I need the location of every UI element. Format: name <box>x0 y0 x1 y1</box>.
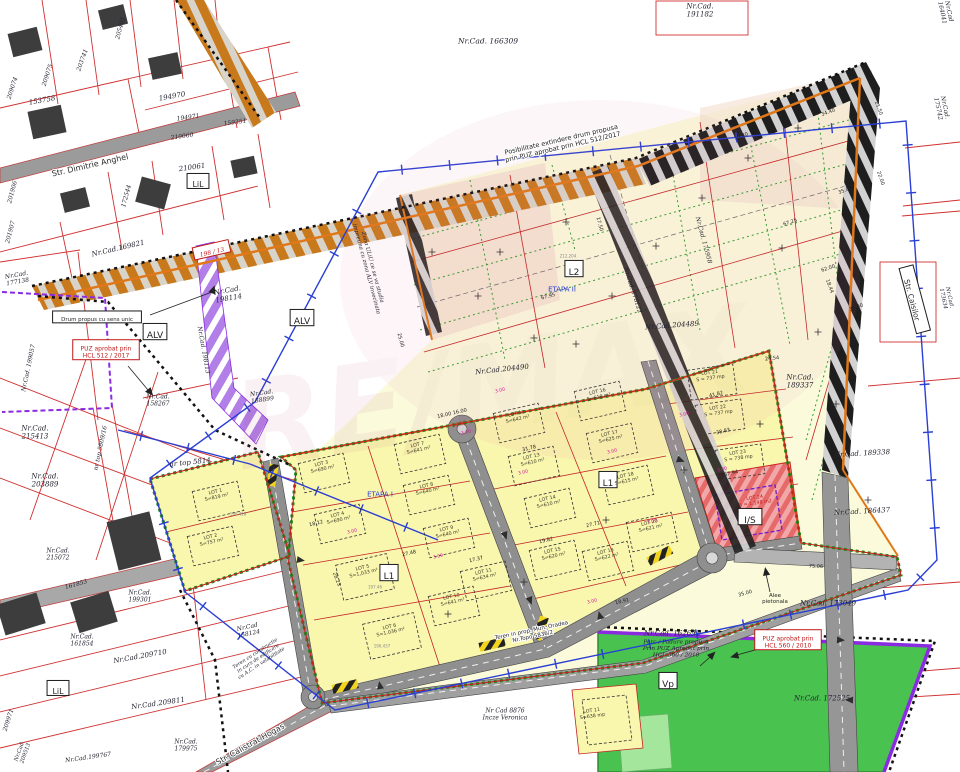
parcel-label: Nr.Cad.215413 <box>20 424 48 440</box>
parcel-label: Nr.Cad. 172525 <box>793 694 851 702</box>
parcel-label: Nr.Cad.209513 <box>13 740 32 766</box>
parcel-label: 203741 <box>75 48 90 73</box>
parcel-label: Nr.Cad. 166309 <box>457 37 518 46</box>
svg-text:Nr.Cad.209513: Nr.Cad.209513 <box>13 740 32 766</box>
svg-text:Vp: Vp <box>662 680 674 690</box>
svg-text:Nr.Cad.161854: Nr.Cad.161854 <box>69 634 93 648</box>
svg-text:Nr.Cad. 189338: Nr.Cad. 189338 <box>833 448 891 459</box>
parcel-label: 210061 <box>177 162 206 174</box>
survey-tick <box>784 128 785 138</box>
note-puz-560: PUZ aprobat prinHCL 560 / 2010 <box>755 630 822 650</box>
svg-text:Drum propus cu sens unic: Drum propus cu sens unic <box>61 317 133 323</box>
svg-text:Nr.Cad.209710: Nr.Cad.209710 <box>112 648 168 666</box>
svg-text:Nr.Cad.169821: Nr.Cad.169821 <box>90 238 145 258</box>
svg-text:ALV: ALV <box>147 331 164 341</box>
svg-text:Nr.Cad.209811: Nr.Cad.209811 <box>130 696 185 712</box>
parcel-label: 201906 <box>6 180 19 205</box>
parcel-label: Nr.Cad.175742 <box>932 94 951 121</box>
svg-text:196.437: 196.437 <box>374 643 391 648</box>
svg-text:75.06: 75.06 <box>809 564 824 570</box>
svg-text:153758: 153758 <box>28 94 56 107</box>
svg-text:Nr.Cad. 186437: Nr.Cad. 186437 <box>833 506 891 517</box>
parcel-label: Nr.Cad. 173049 <box>799 599 857 607</box>
parcel-label: Nr.Cad. 199057 <box>20 344 37 394</box>
survey-tick <box>926 480 936 481</box>
parcel-label: 201907 <box>4 220 17 245</box>
svg-text:Nr Cad 8876Incze Veronica: Nr Cad 8876Incze Veronica <box>482 708 528 722</box>
parcel-label: Nr.Cad.191182 <box>685 2 713 18</box>
survey-tick <box>275 662 281 670</box>
svg-text:Nr.Cad.173634: Nr.Cad.173634 <box>938 285 955 310</box>
svg-text:Nr.Cad.203889: Nr.Cad.203889 <box>30 472 58 488</box>
zone-is: I/S <box>738 508 762 526</box>
svg-text:209075: 209075 <box>40 63 54 88</box>
note-label: Parc / Padure propusaPrin PUZ Aprobat pr… <box>642 639 709 658</box>
parcel-label: Nr.Cad.215072 <box>45 548 69 562</box>
zone-alv-2: ALV <box>290 309 314 327</box>
parcel-label: Nr.Cad. 186437 <box>833 506 891 517</box>
zone-alv-1: ALV <box>143 323 167 341</box>
parcel-label: Nr.Cad. 189338 <box>833 448 891 459</box>
zone-l2: L2 <box>565 260 583 278</box>
svg-text:22.00: 22.00 <box>875 170 885 185</box>
svg-text:Parc / Padure propusaPrin PUZ: Parc / Padure propusaPrin PUZ Aprobat pr… <box>642 639 709 658</box>
survey-tick <box>330 251 339 256</box>
svg-text:201906: 201906 <box>6 180 19 205</box>
parcel-label: Nr.Cad.198114 <box>212 284 243 305</box>
svg-text:L1: L1 <box>603 479 614 489</box>
svg-text:Nr.Cad164041: Nr.Cad164041 <box>936 0 954 25</box>
svg-text:ALV: ALV <box>294 317 311 327</box>
parcel-label: Nr.Cad.209710 <box>112 648 168 666</box>
svg-text:203741: 203741 <box>75 48 90 73</box>
parcel-label: Nr.Cad.173634 <box>938 285 955 310</box>
survey-tick <box>930 528 940 529</box>
svg-text:Nr.Cad.177138: Nr.Cad.177138 <box>3 270 29 288</box>
svg-text:L2: L2 <box>569 268 580 278</box>
parcel-label: Nr Cad 8876Incze Veronica <box>482 708 528 722</box>
parcel-label: Nr.Cad.161854 <box>69 634 93 648</box>
cadastral-map-canvas: RE/MAX 209074209075203741205401153758194… <box>0 0 960 772</box>
parcel-label: 172544 <box>120 184 133 208</box>
survey-tick <box>200 602 206 610</box>
svg-text:Teren cu constructiein curs de: Teren cu constructiein curs de edificare… <box>231 636 286 680</box>
parcel-label: Nr.Cad.199767 <box>64 751 112 765</box>
svg-text:I/S: I/S <box>744 516 756 526</box>
survey-tick <box>205 432 211 440</box>
svg-text:Nr.Cad.179975: Nr.Cad.179975 <box>173 739 197 753</box>
pt-label: 197.46 <box>368 584 382 589</box>
svg-text:Nr.Cad. 172525: Nr.Cad. 172525 <box>793 694 851 702</box>
svg-text:Nr.Cad.191182: Nr.Cad.191182 <box>685 2 713 18</box>
parcel-label: Nr.Cad.169821 <box>90 238 145 258</box>
svg-text:Nr.Cad.175742: Nr.Cad.175742 <box>932 94 951 121</box>
svg-text:Nr.Cad.199767: Nr.Cad.199767 <box>64 751 112 765</box>
street-label-caisilor: Str. Caisilor <box>899 265 931 334</box>
zone-vp: Vp <box>659 672 677 690</box>
svg-text:Nr.Cad. 162691: Nr.Cad. 162691 <box>643 629 700 637</box>
pt-label: 196.437 <box>374 643 391 648</box>
parcel-label: 209971 <box>1 708 15 733</box>
parcel-label: Nr.Cad. 162691 <box>643 629 700 637</box>
svg-text:Nr.Cad. 173049: Nr.Cad. 173049 <box>799 599 857 607</box>
svg-text:197.46: 197.46 <box>368 584 382 589</box>
parcel-label: Nr.Cad.209811 <box>130 696 185 712</box>
svg-text:nr top 5809/16: nr top 5809/16 <box>92 425 108 471</box>
note-puz-512: PUZ aprobat prinHCL 512 / 2017 <box>73 340 140 360</box>
svg-text:Nr.Cad.215072: Nr.Cad.215072 <box>45 548 69 562</box>
dim-label: 22.00 <box>875 170 885 185</box>
survey-tick <box>906 192 916 193</box>
survey-tick <box>916 336 926 337</box>
svg-text:209074: 209074 <box>5 76 19 101</box>
svg-text:Nr.Cad.215413: Nr.Cad.215413 <box>20 424 48 440</box>
survey-tick <box>285 336 294 341</box>
pt-label: 196.418 <box>230 511 247 516</box>
survey-tick <box>923 432 933 433</box>
survey-tick <box>879 119 880 129</box>
svg-text:L1: L1 <box>384 572 395 582</box>
svg-text:ETAPA I: ETAPA I <box>367 490 393 498</box>
svg-text:Nr.Cad158124: Nr.Cad158124 <box>235 621 261 639</box>
svg-text:Nr.Cad. 166309: Nr.Cad. 166309 <box>457 37 518 46</box>
parcel-label: Nr.Cad.177138 <box>3 270 29 288</box>
parcel-label: Nr.Cad.179975 <box>173 739 197 753</box>
map-svg: RE/MAX 209074209075203741205401153758194… <box>0 0 960 772</box>
dim-label: 75.06 <box>809 564 824 570</box>
svg-text:172544: 172544 <box>120 184 133 208</box>
svg-text:209971: 209971 <box>1 708 15 733</box>
parcel-label: nr top 5809/16 <box>92 425 108 471</box>
zone-lil-2: LiL <box>187 173 209 188</box>
survey-tick <box>307 294 316 299</box>
pt-label: 212.204 <box>560 253 577 258</box>
parcel-label: Nr.Cad.158267 <box>145 394 169 408</box>
svg-text:Nr.Cad.158267: Nr.Cad.158267 <box>145 394 169 408</box>
parcel-label: 153758 <box>28 94 56 107</box>
note-drum-propus: Drum propus cu sens unic <box>53 311 142 323</box>
band-orange-branch <box>176 0 276 128</box>
parcel-label: 209074 <box>5 76 19 101</box>
survey-tick <box>909 240 919 241</box>
svg-text:Nr.Cad.198114: Nr.Cad.198114 <box>212 284 243 305</box>
svg-text:201907: 201907 <box>4 220 17 245</box>
parcel-label: Nr.Cad.189337 <box>785 373 813 389</box>
parcel-label: 209075 <box>40 63 54 88</box>
zone-l1-b: L1 <box>599 471 617 489</box>
svg-text:Nr.Cad.189337: Nr.Cad.189337 <box>785 373 813 389</box>
svg-text:Nr.Cad.199301: Nr.Cad.199301 <box>127 590 151 604</box>
svg-text:LiL: LiL <box>192 180 204 189</box>
parcel-label: Nr.Cad158124 <box>235 621 261 639</box>
svg-text:LiL: LiL <box>52 687 64 696</box>
svg-text:212.204: 212.204 <box>560 253 577 258</box>
svg-text:Nr.Cad. 199057: Nr.Cad. 199057 <box>20 344 37 394</box>
survey-point-cross <box>865 497 872 504</box>
survey-tick <box>903 145 913 146</box>
note-label: Teren cu constructiein curs de edificare… <box>231 636 286 680</box>
etapa1-label: ETAPA I <box>367 490 393 498</box>
zone-lil-1: LiL <box>47 680 69 695</box>
survey-tick <box>831 123 832 133</box>
parcel-label: Nr.Cad.199301 <box>127 590 151 604</box>
zone-l1-a: L1 <box>380 564 398 582</box>
svg-text:PUZ aprobat prinHCL 512 / 2017: PUZ aprobat prinHCL 512 / 2017 <box>81 346 132 360</box>
survey-tick <box>920 384 930 385</box>
svg-text:196.418: 196.418 <box>230 511 247 516</box>
svg-text:PUZ aprobat prinHCL 560 / 2010: PUZ aprobat prinHCL 560 / 2010 <box>763 636 814 650</box>
parcel-label: Nr.Cad164041 <box>936 0 954 25</box>
parcel-label: Nr.Cad.203889 <box>30 472 58 488</box>
svg-text:210061: 210061 <box>177 162 206 174</box>
